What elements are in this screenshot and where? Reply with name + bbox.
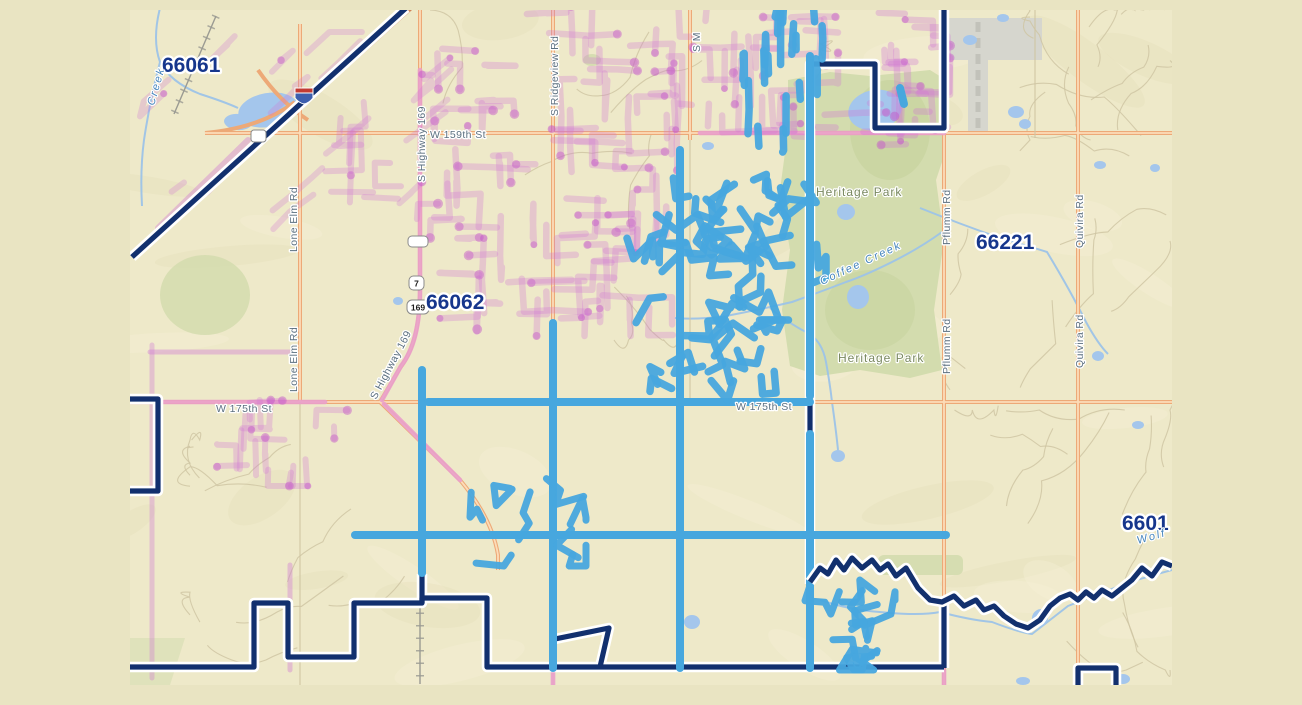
place-label-heritage-park: Heritage Park [816, 185, 902, 199]
route-scribble [628, 97, 665, 154]
route-dot [592, 219, 599, 226]
route-scribble [459, 227, 497, 228]
route-scribble [244, 415, 246, 449]
route-dot [834, 49, 842, 57]
route-shield-blank-top [408, 236, 428, 247]
route-dot [831, 13, 839, 21]
route-scribble [265, 437, 266, 471]
route-dot [464, 251, 474, 261]
zip-label-66221: 66221 [976, 231, 1035, 254]
route-dot [278, 396, 287, 405]
route-dot [890, 112, 900, 122]
road-label-pflumm-rd: Pflumm Rd [941, 189, 953, 245]
route-scribble [364, 197, 398, 199]
route-dot [882, 108, 891, 117]
route-dot [488, 106, 498, 116]
route-dot [556, 151, 565, 160]
route-scribble [485, 65, 516, 66]
route-scribble [783, 129, 784, 152]
route-dot [877, 140, 886, 149]
place-label-heritage-park-2: Heritage Park [838, 351, 924, 365]
pond [837, 204, 855, 220]
route-scribble [331, 192, 373, 193]
route-dot [453, 162, 463, 172]
pond [1008, 106, 1024, 118]
route-dot [433, 199, 443, 209]
route-scribble [783, 10, 784, 23]
route-scribble [316, 410, 348, 427]
route-scribble [761, 371, 776, 394]
page-background: 7 169 66061 66062 66221 6601 W 159th St … [0, 0, 1302, 705]
terrain-blob [951, 158, 1015, 208]
route-dot [897, 138, 904, 145]
route-shield-blank [251, 130, 266, 142]
route-scribble [775, 10, 777, 17]
road-label-w-175th-st-2: W 175th St [736, 401, 792, 413]
terrain-blob [130, 498, 161, 547]
road-label-s-highway-169-2: S Highway 169 [368, 329, 414, 402]
route-dot [480, 234, 488, 242]
minor-road [1028, 413, 1109, 524]
terrain-blob [390, 629, 529, 685]
pond [997, 14, 1009, 22]
pond [393, 297, 403, 305]
route-dot [512, 160, 520, 168]
road-label-w-159th-st: W 159th St [430, 129, 486, 141]
road-label-s-ridgeview-rd: S Ridgeview Rd [549, 36, 561, 116]
route-dot [729, 68, 738, 77]
route-dot [650, 67, 659, 76]
route-scribble [549, 33, 617, 36]
pond [1016, 677, 1030, 685]
route-dot [633, 66, 642, 75]
pond [702, 142, 714, 150]
minor-road [955, 406, 999, 419]
pond [1132, 421, 1144, 429]
park-inner-shade2 [825, 270, 915, 350]
route-dot [633, 185, 641, 193]
road-label-pflumm-rd-2: Pflumm Rd [941, 318, 953, 374]
route-scribble [571, 10, 573, 53]
route-scribble [442, 49, 475, 51]
pond [1092, 351, 1104, 361]
route-scribble [765, 35, 767, 65]
route-dot [471, 47, 479, 55]
route-169-shield-number: 169 [411, 303, 425, 313]
route-dot [472, 324, 482, 334]
terrain-blob [238, 210, 324, 245]
route-dot [621, 164, 628, 171]
pond [831, 450, 845, 462]
map-graphics: 7 169 66061 66062 66221 6601 W 159th St … [130, 10, 1172, 685]
route-scribble [792, 24, 794, 55]
route-dot [447, 54, 454, 61]
route-dot [604, 211, 612, 219]
route-dot [343, 406, 352, 415]
route-dot [666, 66, 675, 75]
route-dot [530, 241, 537, 248]
route-scribble [255, 441, 256, 475]
route-scribble [527, 13, 567, 15]
minor-road [1089, 10, 1165, 27]
route-scribble [814, 10, 815, 22]
pond [1094, 161, 1106, 169]
route-scribble [740, 209, 770, 231]
route-scribble [799, 83, 800, 100]
route-dot [533, 332, 541, 340]
route-dot [721, 85, 728, 92]
terrain-blob [1107, 251, 1172, 316]
road-label-s-highway-169: S Highway 169 [416, 106, 428, 182]
route-scribble [708, 104, 709, 127]
route-scribble [630, 300, 631, 336]
route-dot [455, 85, 465, 95]
route-dot [902, 16, 909, 23]
route-dot [548, 125, 556, 133]
minor-road [1122, 416, 1151, 515]
route-scribble [743, 53, 745, 85]
route-dot [506, 178, 515, 187]
map-canvas[interactable]: 7 169 66061 66062 66221 6601 W 159th St … [130, 10, 1172, 685]
route-scribble [500, 216, 502, 280]
minor-road [1007, 428, 1053, 506]
route-dot [436, 315, 443, 322]
route-scribble [757, 320, 783, 332]
route-dot [261, 433, 270, 442]
route-dot [661, 92, 669, 100]
pond [1019, 119, 1031, 129]
terrain-blob [858, 471, 997, 534]
terrain-blob [1081, 403, 1169, 432]
route-scribble [351, 133, 353, 171]
route-scribble [758, 126, 759, 146]
route-scribble [533, 204, 534, 245]
route-scribble [494, 485, 512, 505]
route-scribble [822, 26, 823, 59]
route-scribble [693, 49, 711, 78]
route-scribble [816, 59, 817, 95]
minor-road [1161, 399, 1172, 467]
road-label-lone-elm-rd-2: Lone Elm Rd [288, 327, 300, 392]
route-dot [213, 463, 221, 471]
road-label-w-175th-st: W 175th St [216, 403, 272, 415]
terrain-blob [761, 620, 847, 685]
route-scribble [733, 34, 734, 73]
route-dot [583, 241, 591, 249]
route-scribble [567, 199, 604, 201]
road-label-s-m: S M [691, 32, 703, 52]
pond [963, 35, 977, 45]
minor-road [181, 592, 200, 622]
terrain-blob [471, 436, 559, 507]
road-label-quivira-rd: Quivira Rd [1074, 194, 1086, 248]
pond [684, 615, 700, 629]
route-scribble [440, 273, 480, 275]
route-scribble [706, 10, 747, 21]
golf-area [160, 255, 250, 335]
route-scribble [754, 174, 776, 197]
route-dot [651, 49, 659, 57]
route-scribble [375, 163, 401, 187]
minor-road [288, 509, 352, 582]
route-scribble [499, 156, 501, 186]
route-dot [759, 13, 768, 22]
route-dot [248, 426, 256, 434]
route-dot [455, 222, 464, 231]
route-scribble [562, 234, 586, 236]
pond [1150, 164, 1160, 172]
route-dot [285, 482, 294, 491]
minor-road [990, 434, 1067, 454]
route-dot [277, 56, 285, 64]
minor-road [1020, 300, 1055, 387]
route-scribble [748, 81, 749, 134]
route-dot [797, 120, 804, 127]
route-scribble [600, 286, 602, 322]
route-dot [578, 314, 585, 321]
route-scribble [605, 73, 608, 119]
route-dot [596, 305, 603, 312]
route-scribble [476, 555, 511, 566]
zip-label-66061: 66061 [162, 54, 221, 77]
zip-label-66062: 66062 [426, 291, 484, 314]
route-dot [789, 102, 797, 110]
route-dot [672, 126, 679, 133]
green-corner [130, 638, 185, 685]
route-scribble [508, 280, 571, 283]
road-label-quivira-rd-2: Quivira Rd [1074, 314, 1086, 368]
route-dot [613, 30, 622, 39]
minor-road [187, 432, 200, 478]
route-scribble [879, 13, 905, 14]
route-dot [611, 228, 621, 238]
route-dot [731, 100, 740, 109]
road-label-lone-elm-rd: Lone Elm Rd [288, 187, 300, 252]
route-dot [330, 434, 338, 442]
route-dot [591, 159, 599, 167]
terrain-blob [284, 567, 350, 594]
route-scribble [306, 459, 308, 486]
pond [847, 285, 869, 309]
route-scribble [537, 300, 538, 336]
route-7-shield-number: 7 [414, 279, 419, 289]
route-dot [510, 109, 520, 119]
route-dot [574, 211, 582, 219]
route-dot [630, 58, 640, 68]
route-scribble [637, 96, 665, 113]
route-scribble [570, 110, 572, 172]
route-dot [661, 147, 670, 156]
minor-road [1121, 10, 1150, 14]
